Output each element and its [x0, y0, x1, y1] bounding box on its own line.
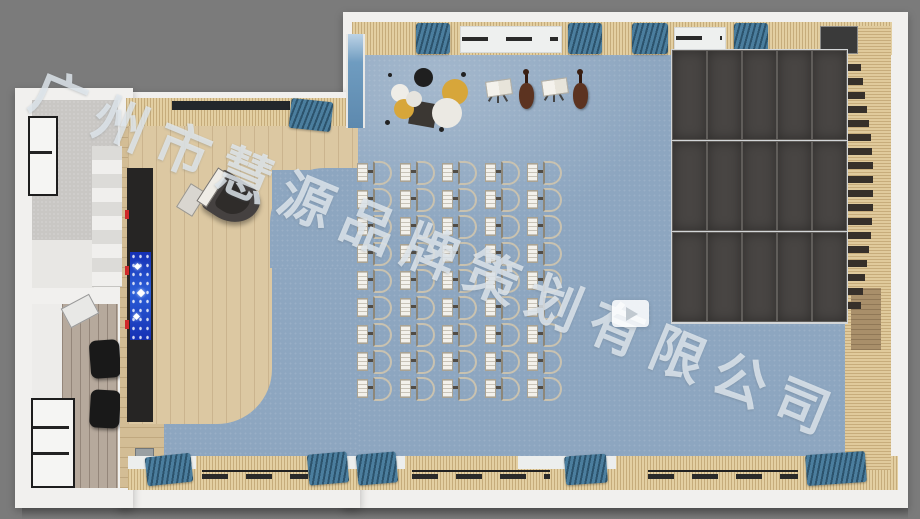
piano-key-decor-bar — [847, 92, 865, 99]
chair-desk — [357, 217, 368, 236]
chair-conn — [496, 359, 501, 362]
chair-unit — [442, 323, 476, 345]
piano-key-decor-bar — [847, 274, 865, 281]
stair-step — [92, 272, 122, 287]
chair-unit — [357, 296, 391, 318]
chair-back — [416, 188, 435, 212]
piano-key-decor-bar — [847, 204, 873, 211]
chair-unit — [357, 161, 391, 183]
chair-conn — [496, 197, 501, 200]
chair-conn — [411, 359, 416, 362]
chair-conn — [411, 251, 416, 254]
stair-step — [92, 202, 122, 217]
chair-desk — [400, 190, 411, 209]
chair-desk — [527, 244, 538, 263]
chair-back — [501, 269, 520, 293]
bottom-window-dashes — [412, 474, 550, 479]
chair-unit — [527, 296, 561, 318]
chair-desk — [485, 244, 496, 263]
drum-tom — [406, 91, 422, 107]
piano-key-decor-bar — [847, 176, 873, 183]
top-window-dashes — [676, 36, 722, 40]
curtain — [145, 453, 194, 487]
stage-top-window-band — [172, 101, 290, 110]
chair-back — [458, 350, 477, 374]
video-play-button[interactable] — [612, 300, 649, 327]
chair-back — [416, 296, 435, 320]
chair-desk — [400, 163, 411, 182]
dark-panel — [812, 50, 847, 140]
dark-panel — [707, 50, 742, 140]
chair-desk — [357, 163, 368, 182]
stand-foot — [385, 120, 390, 125]
chair-back — [416, 377, 435, 401]
stair-step — [92, 230, 122, 245]
led-red-light — [125, 320, 129, 329]
piano-key-decor-bar — [847, 78, 863, 85]
chair-unit — [442, 242, 476, 264]
chair-desk — [527, 271, 538, 290]
stand-foot — [461, 72, 466, 77]
stair-step — [92, 188, 122, 203]
chair-desk — [485, 352, 496, 371]
speaker — [89, 389, 121, 429]
chair-unit — [485, 350, 519, 372]
chair-unit — [357, 215, 391, 237]
chair-desk — [442, 352, 453, 371]
floor-plan-render: 广州市慧源品牌策划有限公司 — [0, 0, 920, 519]
chair-back — [501, 296, 520, 320]
chair-unit — [485, 215, 519, 237]
chair-back — [543, 350, 562, 374]
piano-key-decor-bar — [847, 232, 871, 239]
chair-desk — [400, 244, 411, 263]
dark-panel — [777, 50, 812, 140]
chair-back — [416, 269, 435, 293]
chair-unit — [485, 161, 519, 183]
stair-step — [92, 174, 122, 189]
chair-back — [543, 269, 562, 293]
piano-key-decor-bar — [847, 106, 867, 113]
chair-back — [501, 350, 520, 374]
dark-panel — [672, 141, 707, 231]
chair-back — [501, 215, 520, 239]
piano-key-decor-bar — [847, 64, 861, 71]
bottom-window-line — [648, 470, 798, 472]
chair-unit — [400, 350, 434, 372]
chair-unit — [442, 296, 476, 318]
piano-key-decor-bar — [847, 246, 869, 253]
chair-unit — [357, 350, 391, 372]
dark-panel — [707, 232, 742, 322]
dark-panel — [707, 141, 742, 231]
chair-back — [458, 323, 477, 347]
chair-unit — [357, 188, 391, 210]
dark-panel — [812, 141, 847, 231]
west-glass-window — [346, 34, 365, 128]
chair-back — [373, 161, 392, 185]
chair-back — [543, 188, 562, 212]
stair-step — [92, 216, 122, 231]
led-red-light — [125, 266, 129, 275]
chair-conn — [411, 278, 416, 281]
chair-conn — [411, 305, 416, 308]
chair-back — [373, 323, 392, 347]
stairwell-window-bar — [30, 151, 52, 154]
chair-back — [501, 242, 520, 266]
chair-conn — [411, 386, 416, 389]
chair-desk — [485, 298, 496, 317]
chair-back — [543, 242, 562, 266]
chair-unit — [527, 242, 561, 264]
chair-unit — [485, 377, 519, 399]
chair-desk — [485, 325, 496, 344]
chair-unit — [527, 377, 561, 399]
dark-panel — [777, 232, 812, 322]
play-icon — [626, 307, 638, 321]
chair-unit — [442, 377, 476, 399]
chair-desk — [485, 271, 496, 290]
chair-unit — [357, 377, 391, 399]
top-window-dashes — [462, 37, 558, 41]
chair-back — [416, 242, 435, 266]
chair-desk — [357, 379, 368, 398]
chair-unit — [442, 350, 476, 372]
chair-back — [416, 161, 435, 185]
chair-back — [501, 161, 520, 185]
chair-back — [373, 269, 392, 293]
dark-panel — [742, 50, 777, 140]
chair-back — [501, 188, 520, 212]
piano-key-decor-bar — [847, 134, 871, 141]
chair-unit — [485, 323, 519, 345]
chair-unit — [485, 242, 519, 264]
chair-back — [458, 377, 477, 401]
chair-back — [416, 350, 435, 374]
chair-back — [543, 296, 562, 320]
chair-back — [543, 377, 562, 401]
chair-desk — [442, 190, 453, 209]
chair-unit — [400, 323, 434, 345]
chair-desk — [485, 379, 496, 398]
chair-unit — [485, 296, 519, 318]
piano-key-decor-bar — [847, 218, 872, 225]
chair-unit — [527, 215, 561, 237]
chair-desk — [400, 217, 411, 236]
stair-step — [92, 160, 122, 175]
chair-unit — [400, 215, 434, 237]
chair-desk — [442, 298, 453, 317]
chair-desk — [485, 163, 496, 182]
dark-panel — [777, 141, 812, 231]
chair-unit — [527, 350, 561, 372]
chair-desk — [400, 379, 411, 398]
chair-unit — [400, 377, 434, 399]
chair-conn — [496, 278, 501, 281]
chair-back — [416, 323, 435, 347]
chair-conn — [411, 332, 416, 335]
dark-panel — [672, 232, 707, 322]
chair-desk — [485, 217, 496, 236]
chair-back — [373, 377, 392, 401]
chair-conn — [496, 332, 501, 335]
chair-back — [373, 215, 392, 239]
curtain — [289, 98, 334, 132]
chair-desk — [442, 217, 453, 236]
stand-foot — [439, 127, 444, 132]
chair-back — [458, 161, 477, 185]
lower-room-window-bar — [33, 426, 69, 429]
stair-step — [92, 146, 122, 161]
chair-back — [458, 215, 477, 239]
chair-unit — [357, 323, 391, 345]
chair-back — [416, 215, 435, 239]
curtain — [356, 451, 399, 485]
chair-unit — [527, 269, 561, 291]
chair-desk — [357, 190, 368, 209]
piano-key-decor-bar — [847, 162, 873, 169]
curtain — [564, 454, 608, 486]
chair-desk — [357, 298, 368, 317]
stand-foot — [388, 73, 392, 77]
chair-desk — [400, 352, 411, 371]
drum-bass — [432, 98, 462, 128]
chair-desk — [442, 163, 453, 182]
chair-desk — [357, 352, 368, 371]
curtain — [568, 23, 602, 54]
chair-conn — [411, 197, 416, 200]
chair-back — [501, 323, 520, 347]
chair-conn — [411, 170, 416, 173]
chair-desk — [400, 325, 411, 344]
chair-desk — [442, 325, 453, 344]
chair-unit — [357, 242, 391, 264]
chair-desk — [400, 271, 411, 290]
chair-conn — [496, 224, 501, 227]
chair-desk — [527, 217, 538, 236]
chair-unit — [527, 323, 561, 345]
piano-key-decor-bar — [847, 288, 863, 295]
chair-desk — [485, 190, 496, 209]
bottom-window-dashes — [648, 474, 798, 479]
chair-desk — [357, 271, 368, 290]
dark-panel — [742, 141, 777, 231]
bottom-wall-trim — [128, 456, 898, 490]
chair-unit — [527, 188, 561, 210]
chair-back — [458, 269, 477, 293]
chair-back — [373, 296, 392, 320]
curtain — [416, 23, 450, 54]
chair-desk — [527, 190, 538, 209]
lower-room-window-bar — [33, 452, 69, 455]
piano-key-decor-bar — [847, 148, 872, 155]
dark-panel — [742, 232, 777, 322]
chair-unit — [400, 296, 434, 318]
chair-unit — [527, 161, 561, 183]
chair-back — [543, 161, 562, 185]
piano-key-decor-bar — [847, 120, 869, 127]
chair-conn — [496, 251, 501, 254]
chair-back — [458, 188, 477, 212]
chair-back — [373, 188, 392, 212]
right-wall-wood-panel — [851, 288, 881, 350]
bottom-window-dashes — [202, 474, 308, 479]
chair-unit — [400, 242, 434, 264]
chair-desk — [527, 352, 538, 371]
cello-body — [573, 83, 588, 109]
cello-scroll — [577, 69, 583, 75]
piano-key-decor-bar — [847, 302, 861, 309]
curtain — [307, 451, 350, 485]
chair-desk — [527, 325, 538, 344]
chair-unit — [400, 269, 434, 291]
stairwell-window-frame — [28, 116, 58, 196]
bottom-window-line — [202, 470, 308, 472]
stair-step — [92, 258, 122, 273]
chair-unit — [442, 188, 476, 210]
chair-back — [543, 215, 562, 239]
chair-conn — [496, 170, 501, 173]
chair-conn — [496, 386, 501, 389]
chair-unit — [400, 188, 434, 210]
chair-unit — [442, 215, 476, 237]
chair-desk — [527, 298, 538, 317]
dark-panel — [672, 50, 707, 140]
chair-unit — [485, 188, 519, 210]
chair-desk — [527, 163, 538, 182]
chair-unit — [442, 161, 476, 183]
chair-desk — [357, 325, 368, 344]
chair-back — [458, 296, 477, 320]
chair-back — [373, 350, 392, 374]
chair-unit — [357, 269, 391, 291]
chair-unit — [485, 269, 519, 291]
chair-back — [543, 323, 562, 347]
chair-conn — [411, 224, 416, 227]
chair-desk — [442, 271, 453, 290]
chair-desk — [442, 244, 453, 263]
cello-scroll — [523, 69, 529, 75]
chair-back — [373, 242, 392, 266]
curtain — [805, 451, 867, 486]
led-red-light — [125, 210, 129, 219]
chair-back — [501, 377, 520, 401]
chair-back — [458, 242, 477, 266]
chair-desk — [400, 298, 411, 317]
dark-panel — [812, 232, 847, 322]
building-shadow — [22, 508, 908, 519]
cello-body — [519, 83, 534, 109]
piano-key-decor-bar — [847, 190, 873, 197]
stair-step — [92, 244, 122, 259]
chair-desk — [527, 379, 538, 398]
bottom-window-line — [412, 470, 550, 472]
speaker — [89, 339, 122, 379]
chair-desk — [357, 244, 368, 263]
piano-key-decor-bar — [847, 260, 867, 267]
curtain — [632, 23, 668, 54]
chair-conn — [496, 305, 501, 308]
drum-tom-black — [414, 68, 433, 87]
stairwell-landing — [32, 240, 94, 288]
lower-room-window-frame — [31, 398, 75, 488]
chair-unit — [442, 269, 476, 291]
chair-unit — [400, 161, 434, 183]
chair-desk — [442, 379, 453, 398]
